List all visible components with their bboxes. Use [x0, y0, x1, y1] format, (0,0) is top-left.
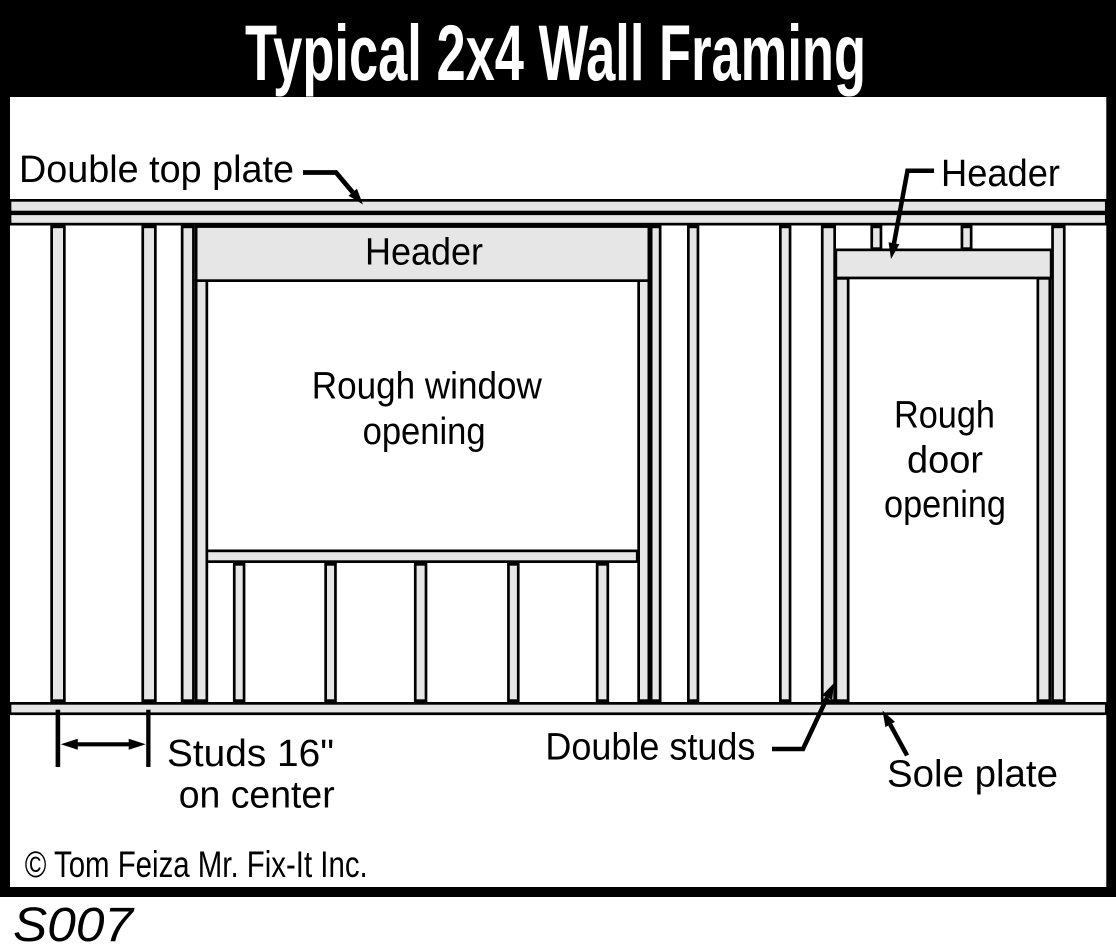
svg-text:Studs 16": Studs 16" — [167, 733, 334, 775]
svg-text:opening: opening — [363, 411, 486, 453]
svg-text:opening: opening — [884, 484, 1006, 526]
svg-text:S007: S007 — [13, 899, 135, 944]
svg-text:Double top plate: Double top plate — [19, 149, 294, 191]
svg-text:door: door — [907, 440, 983, 482]
svg-text:Header: Header — [365, 232, 483, 274]
svg-text:Double studs: Double studs — [545, 727, 755, 769]
svg-text:Rough window: Rough window — [312, 366, 543, 408]
svg-text:Sole plate: Sole plate — [887, 754, 1058, 796]
svg-text:Header: Header — [941, 153, 1060, 195]
svg-text:© Tom Feiza Mr. Fix-It Inc.: © Tom Feiza Mr. Fix-It Inc. — [25, 844, 368, 885]
svg-text:on center: on center — [179, 774, 335, 816]
svg-text:Rough: Rough — [894, 394, 995, 436]
svg-text:Typical 2x4 Wall Framing: Typical 2x4 Wall Framing — [245, 8, 866, 97]
